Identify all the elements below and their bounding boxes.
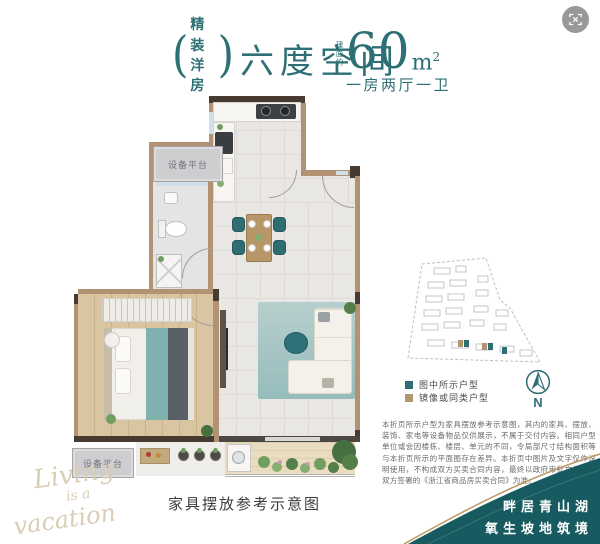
scan-button[interactable] (562, 6, 589, 33)
plant (344, 302, 356, 314)
badge-bracket-left: ( (172, 31, 188, 79)
plant (106, 414, 116, 424)
badge-line-1: 精装 (190, 14, 215, 55)
bed-throw-teal (146, 328, 168, 420)
plate (263, 244, 271, 252)
round-side-table (104, 332, 120, 348)
brand-badge: ( 精装 洋房 ) (172, 26, 234, 84)
plate (248, 244, 256, 252)
legend-swatch-tan (405, 394, 413, 402)
bed-fold (188, 328, 194, 420)
equipment-platform-top: 设备平台 (153, 146, 223, 182)
wall (74, 436, 214, 442)
wall (355, 292, 360, 304)
wall (213, 289, 219, 442)
plant (217, 124, 223, 130)
area-unit: m2 (412, 51, 441, 74)
area-value: 60 (346, 28, 410, 74)
badge-text: 精装 洋房 (190, 14, 215, 95)
plant (158, 256, 164, 262)
tv-screen (226, 328, 228, 370)
equipment-platform-top-label: 设备平台 (154, 147, 222, 181)
wardrobe (102, 298, 192, 322)
flower (278, 460, 282, 464)
slogan-line-2: 氧生坡地筑境 (423, 518, 593, 537)
legend-item-shown: 图中所示户型 (405, 378, 489, 391)
compass-icon (525, 369, 551, 395)
scan-icon (567, 11, 584, 28)
dining-chair (273, 217, 286, 232)
wall (74, 294, 78, 436)
plant (197, 448, 202, 453)
area-figure: 建面约 60 m2 (334, 22, 440, 74)
plant (213, 448, 218, 453)
sofa-pillow (322, 378, 334, 388)
area-prefix: 建面约 (334, 41, 345, 67)
burner (261, 106, 271, 116)
site-unit-shown (488, 343, 493, 350)
layout-subtitle: 一房两厅一卫 (346, 74, 451, 95)
centerpiece (255, 234, 262, 241)
window (336, 171, 348, 175)
toilet (165, 221, 187, 237)
wall (74, 294, 78, 304)
site-unit-shown (502, 347, 507, 354)
wall (213, 289, 219, 301)
window (156, 182, 208, 186)
site-unit-mirror (458, 340, 463, 347)
sofa-pillow (318, 312, 330, 322)
watermark-script: Living is a vacation (4, 449, 172, 540)
site-plan (398, 256, 548, 366)
plant (286, 458, 298, 470)
flyer-page: ( 精装 洋房 ) 六度空间 建面约 60 m2 一房两厅一卫 (0, 0, 600, 544)
washbasin (164, 192, 178, 204)
plant (258, 456, 270, 468)
site-legend: 图中所示户型 镜像或同类户型 (405, 378, 489, 404)
legend-label: 镜像或同类户型 (419, 391, 489, 404)
badge-line-2: 洋房 (190, 55, 215, 96)
plate (263, 220, 271, 228)
dining-chair (232, 217, 245, 232)
site-unit-mirror (482, 343, 487, 350)
pillow (115, 368, 131, 394)
compass-label: N (524, 395, 552, 410)
plant (181, 448, 186, 453)
bed-blanket (168, 328, 188, 420)
dining-chair (273, 240, 286, 255)
legend-label: 图中所示户型 (419, 378, 479, 391)
coffee-table (284, 332, 308, 354)
wall (301, 103, 306, 176)
plate (248, 220, 256, 228)
sofa-chaise (288, 360, 352, 394)
washer-drum (232, 451, 245, 464)
dining-chair (232, 240, 245, 255)
site-unit-shown (464, 340, 469, 347)
plan-caption: 家具摆放参考示意图 (168, 493, 321, 514)
plant (201, 425, 213, 437)
slogan-line-1: 畔居青山湖 (433, 496, 593, 515)
legend-swatch-teal (405, 381, 413, 389)
legend-item-mirror: 镜像或同类户型 (405, 391, 489, 404)
burner (280, 106, 290, 116)
badge-bracket-right: ) (218, 31, 234, 79)
